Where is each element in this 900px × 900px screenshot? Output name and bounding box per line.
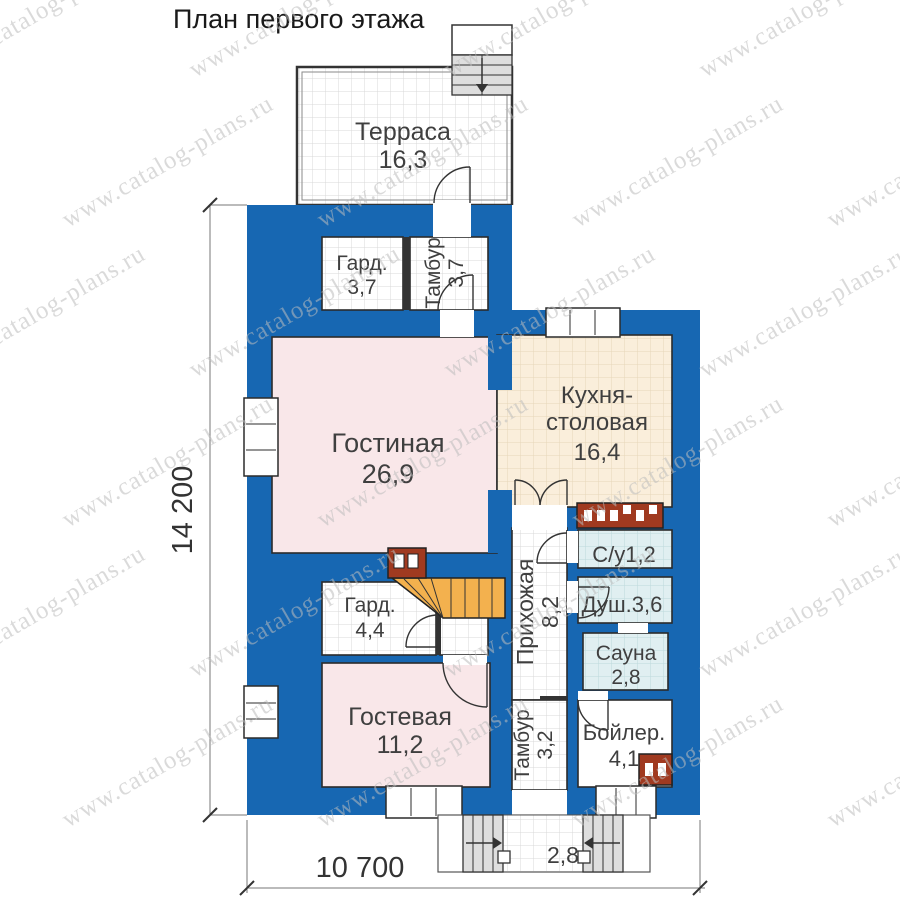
watermark-text: www.catalog-plans.ru — [695, 240, 900, 383]
room-tambour2-area: 3,2 — [534, 730, 557, 759]
room-guest-label: Гостевая — [348, 703, 452, 731]
watermark-text: www.catalog-plans.ru — [823, 90, 900, 233]
porch-post-left — [498, 851, 510, 863]
wall-stub-living-kitchen-bottom — [488, 490, 512, 553]
room-boiler-area: 4,1 — [609, 746, 640, 771]
watermark-text: www.catalog-plans.ru — [58, 690, 279, 833]
opening-tambour1-living — [440, 310, 474, 337]
porch-steps-left — [463, 815, 503, 872]
room-shower-area: 3,6 — [632, 592, 663, 617]
opening-terrace-tambour1 — [433, 200, 471, 237]
floor-plan-page: План первого этажа — [0, 0, 900, 900]
watermark-text: www.catalog-plans.ru — [695, 540, 900, 683]
porch — [438, 815, 650, 872]
room-boiler-label: Бойлер. — [583, 720, 665, 745]
room-sauna-label: Сауна — [596, 642, 657, 665]
porch-post-right — [578, 851, 590, 863]
watermark-text: www.catalog-plans.ru — [823, 390, 900, 533]
watermark-text: www.catalog-plans.ru — [695, 0, 900, 83]
room-wardrobe2-area: 4,4 — [355, 619, 385, 642]
watermark-text: www.catalog-plans.ru — [823, 690, 900, 833]
watermark-text: www.catalog-plans.ru — [0, 540, 150, 683]
opening-hallway-kitchen — [512, 505, 567, 530]
room-wardrobe2-label: Гард. — [344, 594, 395, 617]
room-sauna-area: 2,8 — [611, 666, 640, 689]
opening-tambour2-porch — [512, 790, 567, 815]
room-tambour1-area: 3,7 — [445, 258, 468, 287]
opening-boiler — [578, 691, 608, 700]
partition-wardrobe1-tambour1 — [403, 237, 410, 310]
watermark-text: www.catalog-plans.ru — [0, 240, 150, 383]
watermark-text: www.catalog-plans.ru — [0, 0, 150, 83]
opening-wc — [567, 531, 578, 563]
dimension-height-label: 14 200 — [167, 466, 199, 555]
room-tambour1-label: Тамбур — [422, 237, 445, 308]
room-kitchen-label-1: Кухня- — [561, 382, 633, 409]
room-kitchen-label-2: столовая — [546, 409, 648, 436]
watermark-text: www.catalog-plans.ru — [58, 90, 279, 233]
opening-sauna — [618, 623, 648, 633]
floor-plan: План первого этажа — [0, 0, 900, 900]
room-kitchen-area: 16,4 — [574, 439, 621, 466]
dimension-width-label: 10 700 — [316, 852, 405, 884]
partition-hallway-tambour2 — [540, 696, 567, 700]
watermark-text: www.catalog-plans.ru — [440, 0, 661, 83]
porch-area-label: 2,8 — [547, 842, 579, 868]
